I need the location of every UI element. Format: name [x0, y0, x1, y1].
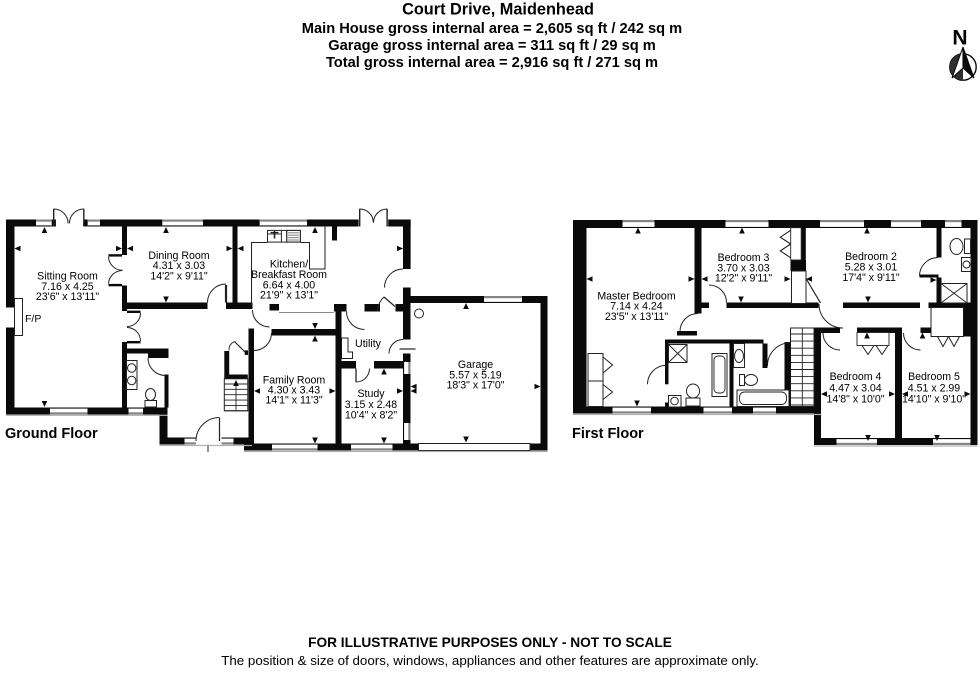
- svg-text:23'5" x 13'11": 23'5" x 13'11": [605, 311, 668, 323]
- svg-text:F/P: F/P: [25, 313, 41, 325]
- svg-text:Ground Floor: Ground Floor: [5, 426, 98, 442]
- svg-text:Court Drive, Maidenhead: Court Drive, Maidenhead: [402, 1, 594, 19]
- svg-text:FOR ILLUSTRATIVE PURPOSES ONLY: FOR ILLUSTRATIVE PURPOSES ONLY - NOT TO …: [308, 635, 672, 650]
- svg-text:14'8" x 10'0": 14'8" x 10'0": [826, 394, 884, 406]
- svg-text:21'9" x 13'1": 21'9" x 13'1": [260, 289, 318, 301]
- svg-text:The position & size of doors,: The position & size of doors, windows, a…: [221, 653, 759, 668]
- svg-text:23'6" x 13'11": 23'6" x 13'11": [36, 291, 99, 303]
- svg-text:17'4" x 9'11": 17'4" x 9'11": [842, 272, 900, 284]
- svg-text:18'3" x 17'0": 18'3" x 17'0": [446, 379, 504, 391]
- svg-text:Main House gross internal area: Main House gross internal area = 2,605 s…: [302, 21, 682, 37]
- svg-text:14'1" x 11'3": 14'1" x 11'3": [265, 394, 323, 406]
- svg-text:Total gross internal area = 2,: Total gross internal area = 2,916 sq ft …: [326, 55, 658, 71]
- svg-text:First Floor: First Floor: [572, 426, 644, 442]
- svg-text:12'2" x 9'11": 12'2" x 9'11": [715, 273, 773, 285]
- svg-text:Utility: Utility: [355, 338, 382, 350]
- svg-text:N: N: [952, 27, 967, 50]
- svg-text:Garage gross internal area = 3: Garage gross internal area = 311 sq ft /…: [328, 38, 656, 54]
- svg-text:Bedroom 5: Bedroom 5: [908, 371, 960, 383]
- svg-text:14'10" x 9'10": 14'10" x 9'10": [902, 394, 966, 406]
- svg-text:Bedroom 4: Bedroom 4: [830, 371, 882, 383]
- svg-text:14'2" x 9'11": 14'2" x 9'11": [150, 270, 208, 282]
- svg-text:10'4" x 8'2": 10'4" x 8'2": [345, 409, 397, 421]
